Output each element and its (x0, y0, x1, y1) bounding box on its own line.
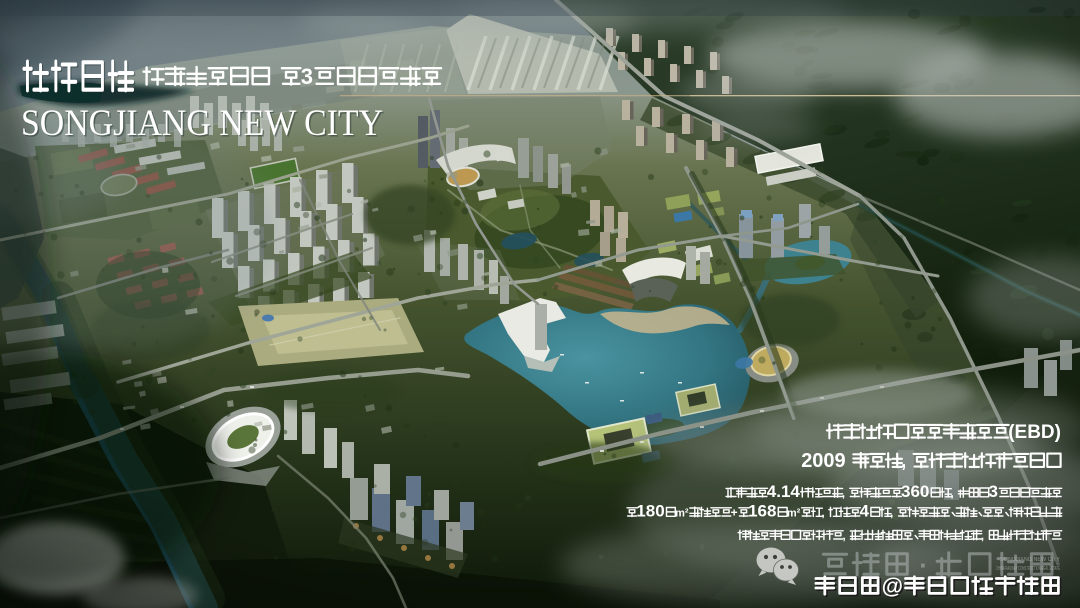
svg-text:CHINA RAILWAY CONSTRUCTION REA: CHINA RAILWAY CONSTRUCTION REAL ESTATE (996, 566, 1060, 572)
svg-text:@: @ (882, 573, 903, 598)
svg-text:4.14: 4.14 (767, 482, 801, 501)
svg-text:180: 180 (636, 501, 664, 520)
svg-text:3: 3 (989, 482, 998, 501)
svg-text:,: , (842, 528, 845, 542)
svg-text:2009: 2009 (801, 450, 846, 472)
svg-text:·: · (919, 550, 928, 580)
svg-text:SONGJIANG NEW CITY: SONGJIANG NEW CITY (1000, 557, 1060, 563)
svg-text:,: , (842, 486, 845, 500)
svg-text:168: 168 (748, 501, 776, 520)
svg-text:m²: m² (787, 507, 801, 519)
svg-text:+: + (731, 505, 738, 519)
svg-text:,: , (821, 505, 824, 519)
svg-text:,: , (981, 528, 984, 542)
svg-text:(EBD): (EBD) (1008, 422, 1061, 443)
svg-text:SONGJIANG NEW CITY: SONGJIANG NEW CITY (21, 103, 383, 144)
svg-text:,: , (950, 486, 953, 500)
svg-text:,: , (901, 451, 906, 472)
svg-text:,: , (890, 505, 893, 519)
svg-text:3: 3 (301, 64, 313, 89)
svg-text:360: 360 (901, 482, 929, 501)
svg-text:4: 4 (860, 501, 870, 520)
svg-text:m²: m² (675, 507, 689, 519)
